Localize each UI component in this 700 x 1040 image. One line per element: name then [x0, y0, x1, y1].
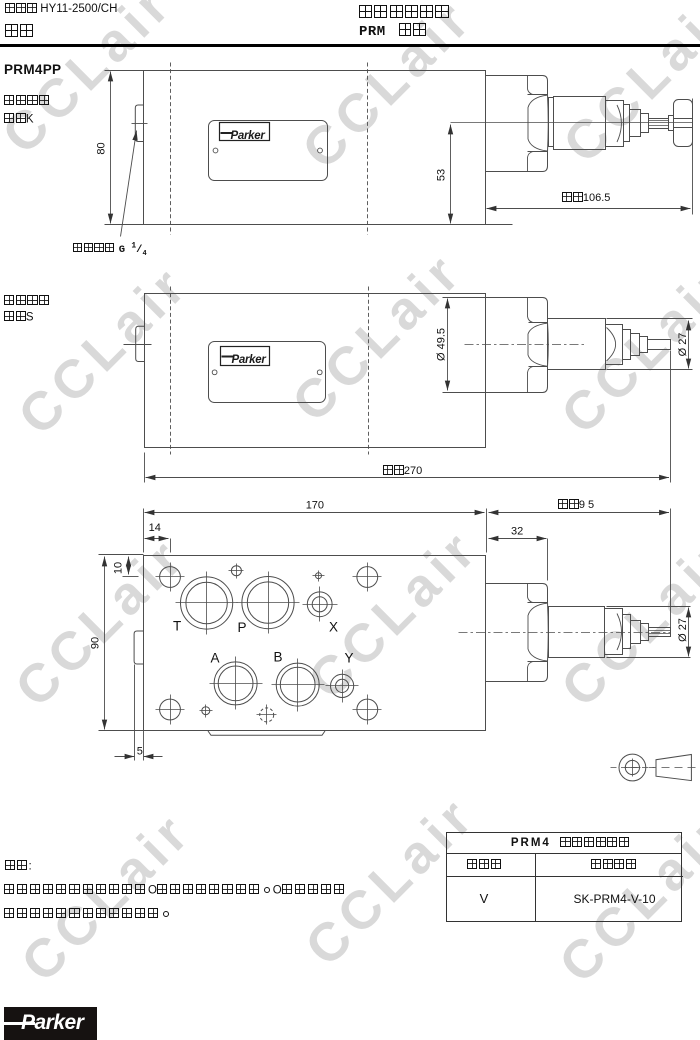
- svg-text:14: 14: [149, 522, 161, 534]
- svg-text:Y: Y: [345, 651, 354, 666]
- svg-text:53: 53: [436, 169, 448, 181]
- svg-text:32: 32: [511, 526, 523, 538]
- svg-text:170: 170: [306, 500, 324, 512]
- svg-text:80: 80: [96, 142, 108, 154]
- svg-text:P: P: [238, 620, 247, 635]
- svg-text:Parker: Parker: [232, 354, 267, 366]
- svg-text:5: 5: [137, 746, 143, 758]
- svg-text:X: X: [329, 620, 338, 635]
- svg-text:A: A: [211, 651, 220, 666]
- svg-text:10: 10: [113, 562, 125, 574]
- svg-text:Ø 49.5: Ø 49.5: [436, 328, 448, 361]
- svg-text:Ø 27: Ø 27: [677, 333, 689, 357]
- svg-text:T: T: [173, 619, 181, 634]
- svg-text:90: 90: [90, 637, 102, 649]
- svg-text:Parker: Parker: [231, 130, 266, 142]
- svg-text:B: B: [274, 650, 283, 665]
- svg-text:Ø 27: Ø 27: [677, 618, 689, 642]
